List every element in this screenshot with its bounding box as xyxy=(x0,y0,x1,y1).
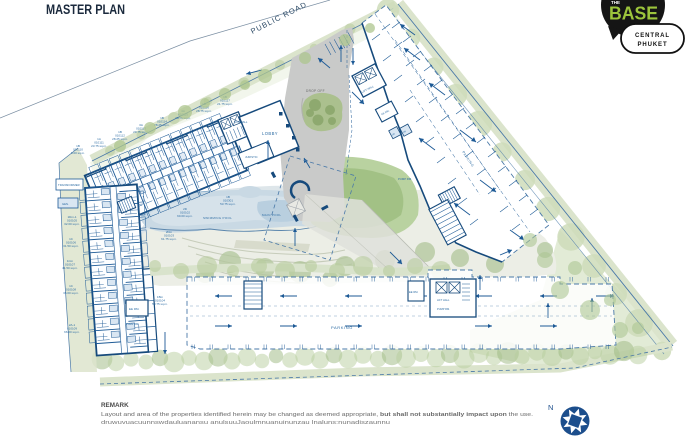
svg-text:MASTER PLAN: MASTER PLAN xyxy=(46,2,125,17)
svg-text:28.25 sq.m.: 28.25 sq.m. xyxy=(154,123,170,127)
svg-text:21.75 sq.m.: 21.75 sq.m. xyxy=(217,102,233,106)
svg-text:41.50 sq.m.: 41.50 sq.m. xyxy=(62,266,78,270)
svg-text:PUMP RM.: PUMP RM. xyxy=(126,322,139,326)
svg-text:61.75 sq.m.: 61.75 sq.m. xyxy=(161,237,177,241)
svg-text:REMARK: REMARK xyxy=(101,402,129,409)
svg-text:PHUKET: PHUKET xyxy=(637,42,667,48)
svg-text:SWIMMING POOL: SWIMMING POOL xyxy=(203,216,232,220)
svg-text:53.75 sq.m.: 53.75 sq.m. xyxy=(152,302,168,306)
svg-text:23.75 sq.m.: 23.75 sq.m. xyxy=(91,144,107,148)
svg-text:LIFT HALL: LIFT HALL xyxy=(234,120,248,124)
svg-text:N: N xyxy=(548,403,553,412)
svg-text:BASE: BASE xyxy=(609,4,658,24)
svg-text:PUMP RM.: PUMP RM. xyxy=(398,177,412,181)
svg-text:DROP OFF: DROP OFF xyxy=(306,89,325,93)
svg-text:JURISTIC: JURISTIC xyxy=(245,155,258,159)
svg-text:EE RM.: EE RM. xyxy=(129,307,140,311)
svg-text:32.00 sq.m.: 32.00 sq.m. xyxy=(64,222,80,226)
svg-text:35.00 sq.m.: 35.00 sq.m. xyxy=(63,291,79,295)
svg-text:66.00 sq.m.: 66.00 sq.m. xyxy=(64,330,80,334)
svg-text:PUMP RM.: PUMP RM. xyxy=(437,307,450,311)
svg-text:31.50 sq.m.: 31.50 sq.m. xyxy=(63,244,79,248)
svg-text:Layout and area of the propert: Layout and area of the properties identi… xyxy=(101,412,534,418)
svg-text:EE RM.: EE RM. xyxy=(409,290,419,294)
svg-text:LIFT HALL: LIFT HALL xyxy=(437,298,450,302)
svg-text:60.00 sq.m.: 60.00 sq.m. xyxy=(177,214,193,218)
svg-text:druwuvuacuunnswdauluanansu anu: druwuvuacuunnswdauluanansu anulsuuJaoulm… xyxy=(101,420,390,426)
svg-text:PARKING: PARKING xyxy=(331,325,353,330)
svg-text:TRANSFORMER: TRANSFORMER xyxy=(58,183,80,187)
svg-text:9.00 sq.m.: 9.00 sq.m. xyxy=(71,151,85,155)
svg-text:53.75 sq.m.: 53.75 sq.m. xyxy=(220,202,236,206)
svg-text:28.75 sq.m.: 28.75 sq.m. xyxy=(196,109,212,113)
svg-text:MAIN POOL: MAIN POOL xyxy=(262,213,281,217)
svg-text:LOBBY: LOBBY xyxy=(262,131,278,136)
svg-text:GEN.: GEN. xyxy=(62,202,69,206)
svg-text:CENTRAL: CENTRAL xyxy=(635,33,670,39)
